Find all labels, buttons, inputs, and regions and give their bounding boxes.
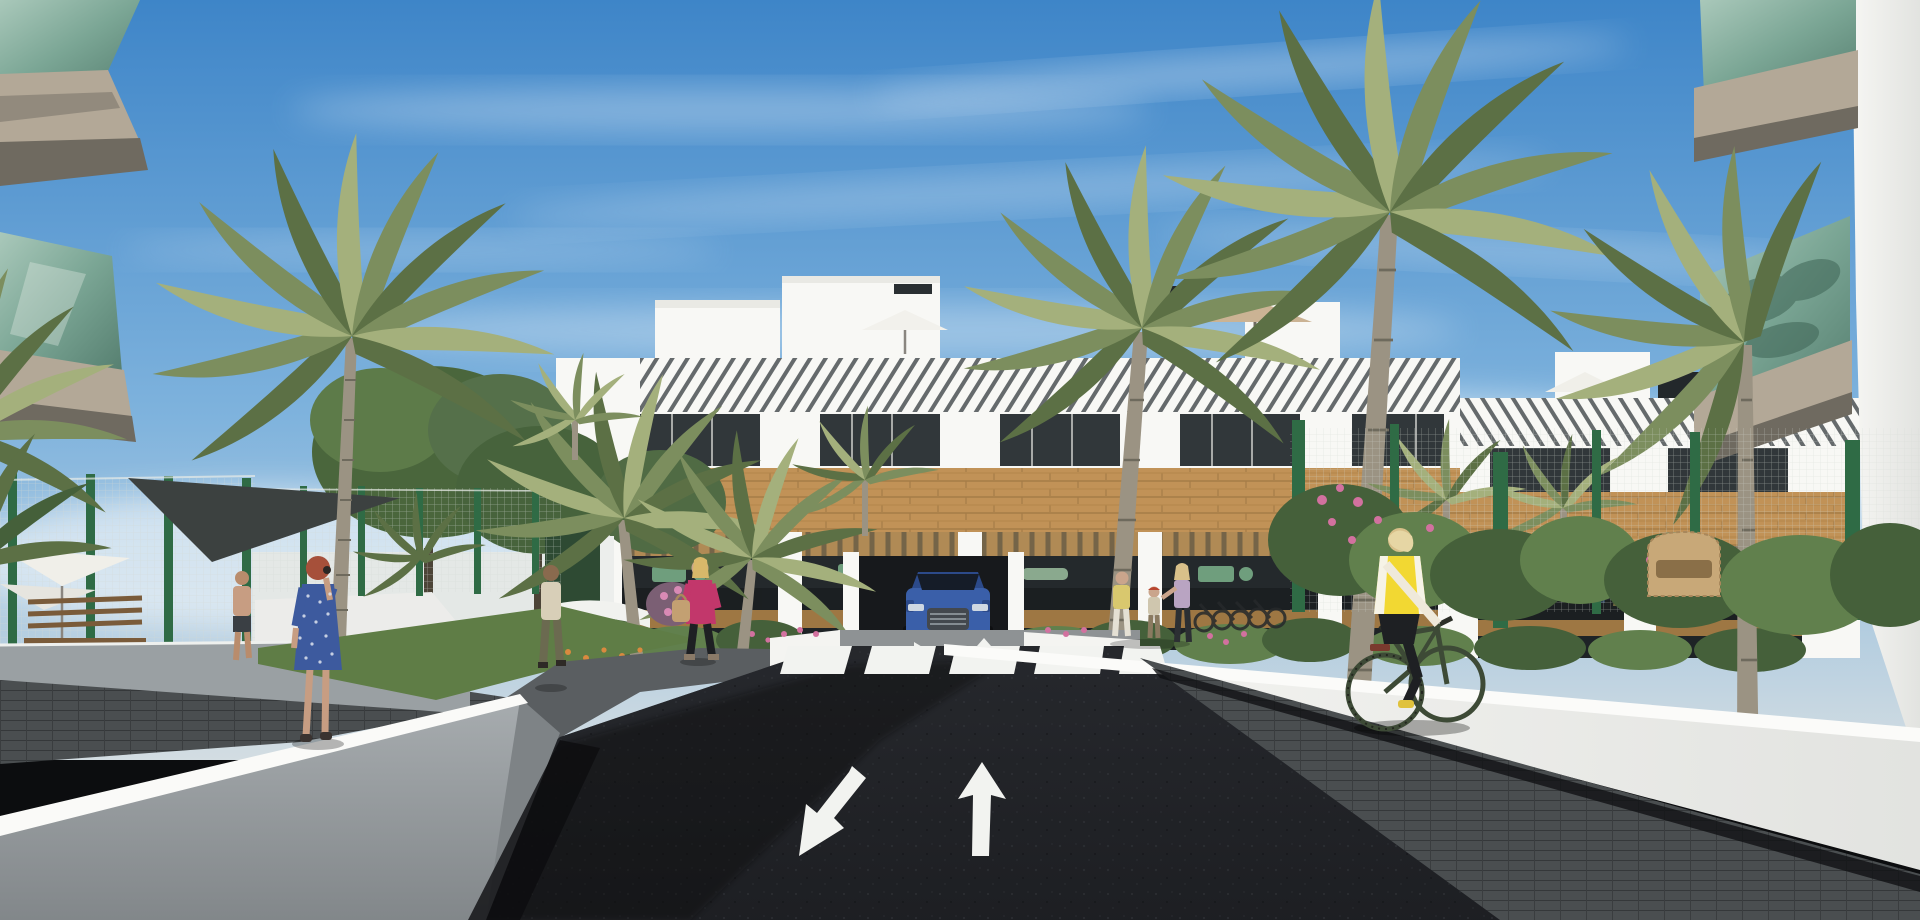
architectural-render — [0, 0, 1920, 920]
suv-windshield — [917, 574, 979, 590]
wicker-armchair — [1648, 532, 1720, 596]
cyclist-hips — [1378, 612, 1420, 644]
render-canvas — [0, 0, 1920, 920]
right-garden — [1268, 420, 1920, 635]
crosswalk-stripe — [780, 646, 852, 674]
crosswalk-stripe — [864, 646, 936, 674]
